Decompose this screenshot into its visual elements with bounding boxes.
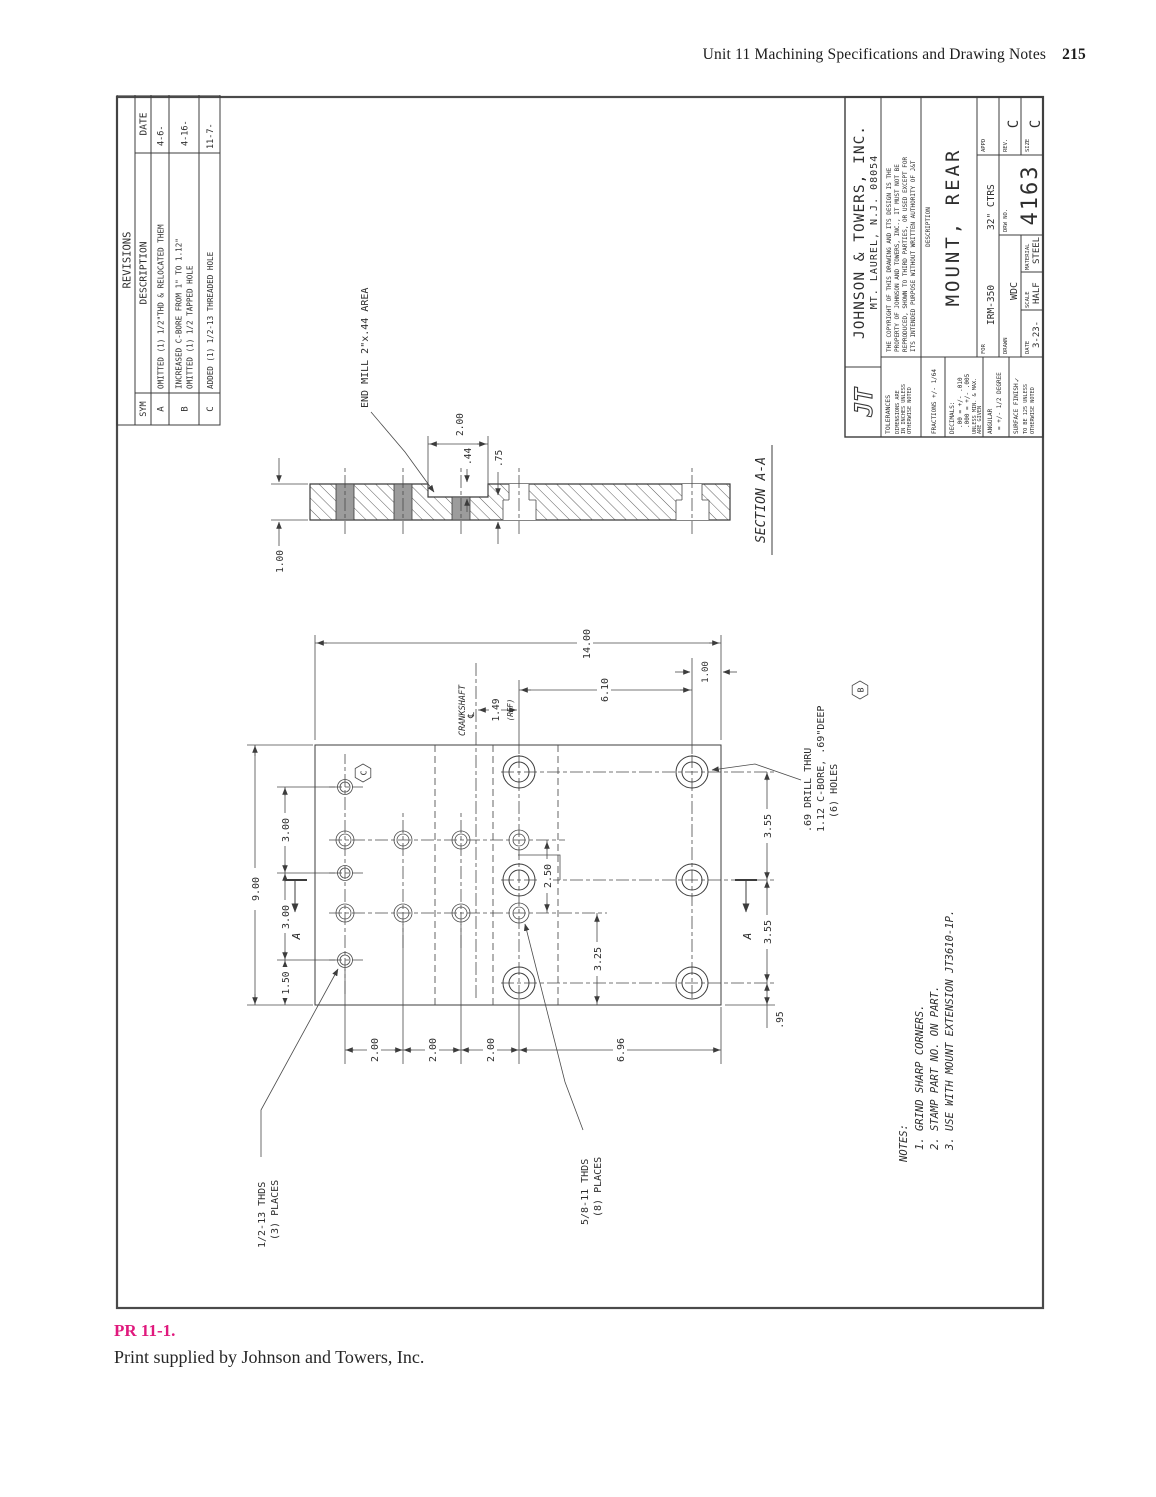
dim-bottom-chain-1: .95 (775, 1011, 786, 1028)
svg-text:.00 = +/- .010: .00 = +/- .010 (957, 377, 964, 428)
svg-text:TOLERANCES: TOLERANCES (884, 395, 892, 434)
col-date: DATE (139, 112, 150, 135)
section-view: 1.00 2.00 .44 .75 END MILL 2"x.44 (271, 288, 772, 573)
surface-check-icon: ✓ (1013, 378, 1021, 382)
svg-text:1.12 C-BORE, .69"DEEP: 1.12 C-BORE, .69"DEEP (816, 706, 827, 832)
tapped-holes-five8 (336, 830, 529, 923)
dim-crank-ref: 1.49 (491, 698, 502, 721)
plan-dimensions: 9.00 1.50 3.00 3.00 (247, 619, 786, 1067)
svg-text:.69 DRILL THRU: .69 DRILL THRU (803, 748, 814, 832)
revisions-title: REVISIONS (122, 232, 134, 289)
title-block: JT JOHNSON & TOWERS, INC. MT. LAUREL, N.… (845, 97, 1044, 437)
leader-notes: 1/2-13 THDS (3) PLACES 5/8-11 THDS (8) P… (257, 681, 868, 1248)
part-outline (315, 745, 721, 1005)
description-cell: DESCRIPTION MOUNT, REAR (925, 148, 964, 307)
section-title: SECTION A-A (754, 457, 769, 543)
part-title: MOUNT, REAR (942, 148, 964, 307)
drawn-cell: DRAWN WDC (1003, 282, 1020, 354)
dim-notch-length: 2.00 (455, 413, 466, 436)
svg-text:32" CTRS: 32" CTRS (986, 184, 997, 230)
svg-text:C: C (1028, 120, 1044, 128)
dim-crank-ref-note: (REF) (506, 699, 515, 722)
general-notes: NOTES: 1. GRIND SHARP CORNERS. 2. STAMP … (898, 910, 956, 1163)
revision-row-c: C ADDED (1) 1/2-13 THREADED HOLE 11-7- (206, 123, 216, 411)
svg-text:IRM-350: IRM-350 (986, 285, 997, 325)
dim-edge-to-col: 3.25 (593, 947, 604, 971)
svg-text:3-23-: 3-23- (1032, 321, 1042, 348)
copyright-cell: THE COPYRIGHT OF THIS DRAWING AND ITS DE… (886, 157, 917, 352)
svg-text:A: A (157, 406, 167, 412)
svg-text:DRAWN: DRAWN (1003, 337, 1009, 354)
drw-no-cell: DRW NO. 4163 (1003, 165, 1043, 232)
section-cut-markers: A A (285, 880, 757, 940)
page-number: 215 (1062, 46, 1086, 63)
svg-text:REPRODUCED, SHOWN TO THIRD PAR: REPRODUCED, SHOWN TO THIRD PARTIES, OR U… (902, 157, 909, 352)
angular-cell: ANGULAR = +/- 1/2 DEGREE (987, 372, 1003, 434)
tolerances-cell: TOLERANCES DIMENSIONS ARE IN INCHES UNLE… (884, 384, 913, 434)
svg-text:C: C (360, 770, 369, 775)
surface-finish-cell: SURFACE FINISH ✓ TO BE 125 UNLESS OTHERW… (1013, 378, 1036, 434)
svg-text:OTHERWISE NOTED: OTHERWISE NOTED (907, 387, 913, 434)
svg-text:DATE: DATE (1025, 341, 1031, 354)
caption-label: PR 11-1. (114, 1318, 424, 1344)
dim-bottom-offset: 1.00 (701, 661, 711, 683)
section-arrow-label-a2: A (741, 933, 754, 941)
date-cell: DATE 3-23- (1025, 321, 1042, 354)
svg-text:B: B (857, 687, 866, 692)
svg-text:= +/- 1/2 DEGREE: = +/- 1/2 DEGREE (996, 372, 1003, 430)
svg-text:APPD: APPD (981, 139, 987, 152)
for-cell: FOR IRM-350 32" CTRS (981, 184, 997, 354)
svg-text:NOTES:: NOTES: (898, 1124, 910, 1163)
revisions-table: REVISIONS SYM DESCRIPTION DATE A OMITTED… (117, 95, 220, 425)
dim-thickness: 1.00 (275, 550, 286, 573)
company-address: MT. LAUREL, N.J. 08054 (869, 155, 880, 309)
half13-note: 1/2-13 THDS (3) PLACES (257, 969, 338, 1248)
material-cell: MATERIAL STEEL (1025, 237, 1042, 270)
svg-text:DESCRIPTION: DESCRIPTION (925, 207, 932, 247)
dim-pair-spacing: 2.50 (543, 864, 554, 888)
svg-text:(3) PLACES: (3) PLACES (270, 1180, 281, 1240)
end-mill-note: END MILL 2"x.44 AREA (360, 288, 434, 492)
svg-text:REV.: REV. (1003, 139, 1009, 152)
dim-notch-depth: .44 (463, 448, 474, 465)
plan-view: A A C (285, 662, 777, 1005)
figure-caption: PR 11-1. Print supplied by Johnson and T… (114, 1318, 424, 1371)
svg-text:C: C (1006, 120, 1022, 128)
svg-text:SCALE: SCALE (1025, 291, 1031, 308)
fractions-cell: FRACTIONS +/- 1/64 (931, 369, 938, 434)
svg-text:C: C (206, 406, 216, 411)
section-arrow-label-a1: A (290, 933, 303, 941)
svg-text:SURFACE FINISH: SURFACE FINISH (1013, 383, 1020, 434)
revision-flag-c-icon: C (355, 764, 371, 782)
svg-text:(8) PLACES: (8) PLACES (593, 1157, 604, 1217)
dim-left-chain-2: 2.00 (428, 1038, 439, 1062)
dim-bottom-chain-3: 3.55 (763, 814, 774, 838)
dim-left-chain-3: 2.00 (486, 1038, 497, 1062)
svg-text:ARE GIVEN: ARE GIVEN (977, 406, 983, 434)
svg-text:1/2-13 THDS: 1/2-13 THDS (257, 1182, 268, 1248)
dim-overall-width: 9.00 (251, 877, 262, 901)
svg-text:FRACTIONS +/- 1/64: FRACTIONS +/- 1/64 (931, 369, 938, 434)
svg-text:DECIMALS:: DECIMALS: (949, 401, 956, 434)
page-header: Unit 11 Machining Specifications and Dra… (703, 46, 1086, 64)
svg-text:OMITTED (1) 1/2"THD & RELOCATE: OMITTED (1) 1/2"THD & RELOCATED THEM (157, 224, 166, 389)
svg-text:ADDED (1) 1/2-13 THREADED HOLE: ADDED (1) 1/2-13 THREADED HOLE (206, 251, 215, 389)
svg-text:WDC: WDC (1009, 282, 1020, 300)
svg-text:FOR: FOR (981, 343, 987, 354)
revision-flag-b-icon: B (852, 681, 868, 699)
svg-text:.000 = +/- .005: .000 = +/- .005 (964, 373, 971, 428)
dim-top-chain-1: 1.50 (281, 971, 292, 994)
textbook-page: Unit 11 Machining Specifications and Dra… (0, 0, 1156, 1497)
rev-cell: REV. C (1003, 120, 1022, 152)
dim-top-chain-2: 3.00 (281, 905, 292, 929)
decimals-cell: DECIMALS: .00 = +/- .010 .000 = +/- .005… (949, 373, 983, 434)
counterbored-holes (503, 756, 708, 999)
svg-text:END MILL 2"x.44 AREA: END MILL 2"x.44 AREA (360, 288, 371, 408)
svg-text:STEEL: STEEL (1032, 237, 1042, 264)
dim-overall-height: 14.00 (582, 629, 593, 659)
crankshaft-label: CRANKSHAFT (458, 684, 468, 736)
drawing-number: 4163 (1018, 165, 1043, 226)
dim-hole-rows: 6.10 (600, 678, 611, 702)
svg-text:THE COPYRIGHT OF THIS DRAWING: THE COPYRIGHT OF THIS DRAWING AND ITS DE… (886, 167, 893, 352)
svg-text:OTHERWISE NOTED: OTHERWISE NOTED (1030, 387, 1036, 434)
svg-text:4-16-: 4-16- (181, 120, 191, 146)
running-head: Unit 11 Machining Specifications and Dra… (703, 46, 1046, 63)
svg-text:TO BE 125 UNLESS: TO BE 125 UNLESS (1023, 384, 1029, 434)
cbore-note: .69 DRILL THRU 1.12 C-BORE, .69"DEEP (6)… (712, 681, 868, 832)
svg-text:MATERIAL: MATERIAL (1025, 243, 1031, 270)
svg-text:ITS INTENDED PURPOSE WITHOUT W: ITS INTENDED PURPOSE WITHOUT WRITTEN AUT… (910, 160, 917, 352)
svg-text:HALF: HALF (1032, 282, 1042, 304)
revision-row-b: B INCREASED C-BORE FROM 1" TO 1.12" OMIT… (175, 120, 195, 411)
svg-text:INCREASED C-BORE FROM 1" TO 1.: INCREASED C-BORE FROM 1" TO 1.12" (175, 238, 184, 389)
col-sym: SYM (139, 401, 149, 416)
svg-text:1. GRIND SHARP CORNERS.: 1. GRIND SHARP CORNERS. (914, 1005, 926, 1150)
svg-text:(6) HOLES: (6) HOLES (829, 764, 840, 818)
centerline-symbol: ℄ (467, 712, 477, 719)
svg-text:DRW NO.: DRW NO. (1003, 209, 1009, 232)
svg-text:2. STAMP PART NO. ON PART.: 2. STAMP PART NO. ON PART. (929, 986, 941, 1150)
col-description: DESCRIPTION (139, 241, 150, 304)
svg-text:OMITTED (1) 1/2 TAPPED HOLE: OMITTED (1) 1/2 TAPPED HOLE (186, 265, 195, 389)
dim-left-chain-1: 2.00 (370, 1038, 381, 1062)
company-name: JOHNSON & TOWERS, INC. (852, 125, 868, 339)
size-cell: SIZE C (1025, 120, 1044, 152)
svg-text:PROPERTY OF JOHNSON AND TOWERS: PROPERTY OF JOHNSON AND TOWERS, INC., IT… (894, 164, 901, 352)
plan-centerlines (329, 662, 777, 998)
jt-logo-icon: JT (850, 386, 878, 417)
dim-left-chain-4: 6.96 (616, 1038, 627, 1062)
engineering-print: REVISIONS SYM DESCRIPTION DATE A OMITTED… (115, 95, 1045, 1310)
svg-text:SIZE: SIZE (1025, 139, 1031, 152)
appd-cell: APPD (981, 139, 987, 152)
svg-text:5/8-11 THDS: 5/8-11 THDS (580, 1159, 591, 1225)
drawing-sheet: REVISIONS SYM DESCRIPTION DATE A OMITTED… (115, 95, 1045, 1310)
svg-text:B: B (181, 406, 191, 411)
svg-text:3. USE WITH MOUNT EXTENSION JT: 3. USE WITH MOUNT EXTENSION JT3610-1P. (944, 910, 956, 1151)
revision-row-a: A OMITTED (1) 1/2"THD & RELOCATED THEM 4… (157, 126, 167, 412)
dim-bottom-chain-2: 3.55 (763, 920, 774, 944)
dim-top-chain-3: 3.00 (281, 818, 292, 842)
svg-text:4-6-: 4-6- (157, 126, 167, 146)
scale-cell: SCALE HALF (1025, 282, 1042, 308)
svg-text:ANGULAR: ANGULAR (987, 408, 994, 434)
svg-text:11-7-: 11-7- (206, 123, 216, 149)
dim-remaining: .75 (494, 450, 505, 467)
caption-text: Print supplied by Johnson and Towers, In… (114, 1344, 424, 1371)
